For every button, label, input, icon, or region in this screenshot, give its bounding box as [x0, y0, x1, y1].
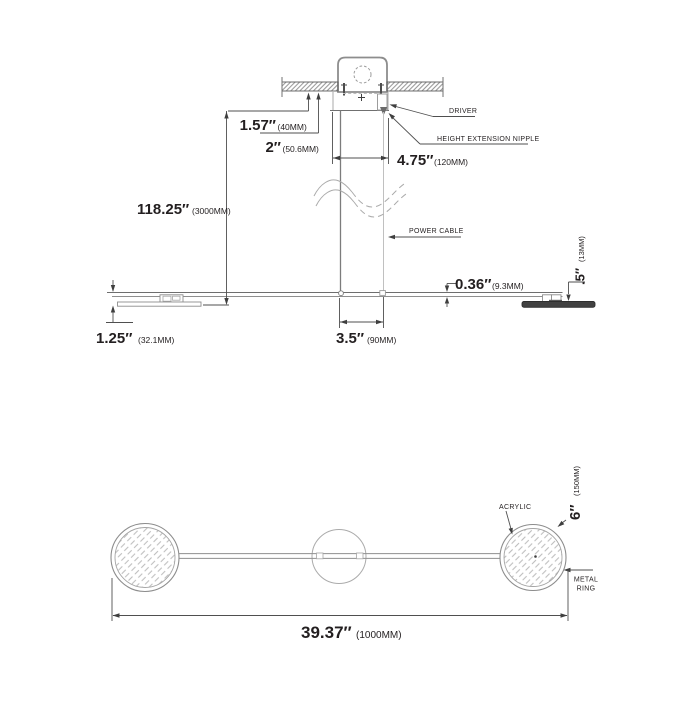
- plan-view-diagram: ACRYLIC 6″ (150MM) METAL RING 39.37″ (1: [111, 465, 598, 642]
- pendant-fixture-dimension-sheet: 1.57″ (40MM) 2″ (50.6MM) 4.75″ (120MM) 1…: [0, 0, 700, 700]
- dim-cable-spacing: 3.5″ (90MM): [336, 297, 396, 347]
- acrylic-disk-left-plan: [111, 524, 179, 592]
- dim-0-5-value: .5″: [573, 268, 588, 285]
- dim-6-value: 6″: [567, 504, 584, 520]
- callout-disk-diameter: 6″ (150MM): [558, 465, 585, 527]
- dim-1-57-paren: (40MM): [278, 122, 307, 132]
- height-extension-nipple-label: HEIGHT EXTENSION NIPPLE: [437, 136, 539, 143]
- technical-drawing: 1.57″ (40MM) 2″ (50.6MM) 4.75″ (120MM) 1…: [0, 0, 700, 700]
- callout-driver: DRIVER: [390, 104, 478, 116]
- acrylic-disk-right-plan: [500, 525, 566, 591]
- ceiling-hatch-right: [387, 82, 443, 91]
- disk-center-dot: [534, 555, 537, 558]
- dim-4-75-paren: (120MM): [434, 157, 468, 167]
- dim-1-25-value: 1.25″: [96, 330, 132, 347]
- callout-power-cable: POWER CABLE: [388, 228, 464, 239]
- dim-1-57-value: 1.57″: [240, 117, 276, 134]
- stem-attachment: [339, 291, 344, 296]
- cable-attachment: [380, 291, 386, 296]
- dim-1-25-paren: (32.1MM): [138, 335, 175, 345]
- dim-39-37-paren: (1000MM): [356, 630, 402, 641]
- break-squiggle: [314, 180, 406, 217]
- metal-ring-label-line1: METAL: [574, 577, 598, 584]
- dim-118-25-value: 118.25″: [137, 201, 189, 218]
- dim-0-5-paren: (13MM): [577, 236, 586, 262]
- dim-disk-thickness: .5″ (13MM): [566, 236, 587, 301]
- dim-3-5-paren: (90MM): [367, 335, 396, 345]
- dim-39-37-value: 39.37″: [301, 623, 352, 642]
- junction-box: [338, 58, 387, 93]
- acrylic-label: ACRYLIC: [499, 504, 531, 511]
- callout-metal-ring: METAL RING: [564, 568, 599, 593]
- dim-118-25-paren: (3000MM): [192, 206, 231, 216]
- callout-height-extension-nipple: HEIGHT EXTENSION NIPPLE: [389, 113, 540, 144]
- power-cable-label: POWER CABLE: [409, 228, 464, 235]
- dim-3-5-value: 3.5″: [336, 330, 364, 347]
- center-cross-mark: [358, 94, 365, 101]
- dim-4-75-value: 4.75″: [397, 152, 433, 169]
- dim-6-paren: (150MM): [572, 465, 581, 496]
- cable-gland-left: [317, 553, 324, 559]
- dim-bar-thickness: 0.36″ (9.3MM): [445, 276, 524, 307]
- dim-0-36-value: 0.36″: [455, 276, 491, 293]
- dim-max-drop: 118.25″ (3000MM): [137, 111, 231, 305]
- dim-2-paren: (50.6MM): [283, 144, 320, 154]
- cable-gland-right: [357, 553, 364, 559]
- canopy-housing: [330, 92, 389, 116]
- dim-0-36-paren: (9.3MM): [492, 281, 524, 291]
- side-view-diagram: 1.57″ (40MM) 2″ (50.6MM) 4.75″ (120MM) 1…: [96, 58, 595, 348]
- driver-label: DRIVER: [449, 108, 477, 115]
- ceiling-hatch-left: [282, 82, 338, 91]
- metal-ring-label-line2: RING: [577, 586, 596, 593]
- dim-canopy-offsets: 1.57″ (40MM) 2″ (50.6MM): [228, 93, 321, 157]
- dim-2-value: 2″: [265, 139, 281, 156]
- dim-end-drop: 1.25″ (32.1MM): [96, 280, 175, 347]
